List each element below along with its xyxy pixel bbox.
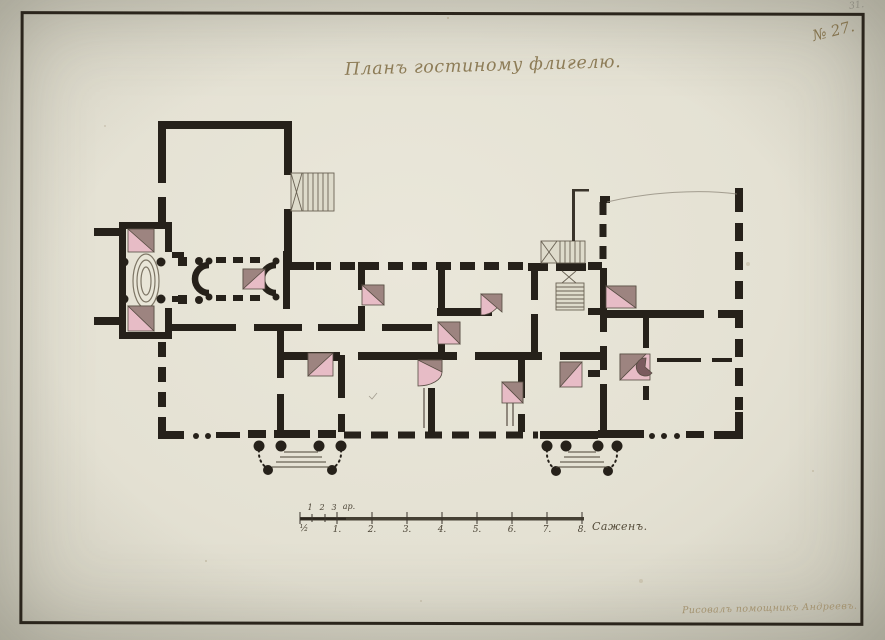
scale-arshin-label: 2 <box>319 503 324 512</box>
floor-plan-drawing <box>0 0 885 640</box>
scale-arshin-unit: ар. <box>343 502 355 511</box>
porch-west <box>254 441 347 476</box>
oval-staircase <box>133 254 159 308</box>
scale-unit-label: Саженъ. <box>592 520 648 533</box>
scale-sazhen-label: 5. <box>473 525 482 535</box>
rear-staircase-upper <box>541 189 589 263</box>
stove <box>438 322 460 344</box>
scale-bar <box>300 512 584 524</box>
scale-sazhen-label: 1. <box>333 525 342 535</box>
porch-east <box>542 441 623 477</box>
stove <box>560 362 582 387</box>
scale-sazhen-label: 7. <box>543 525 552 535</box>
stove <box>128 229 154 252</box>
stove <box>243 269 265 289</box>
walls-solid <box>94 121 743 439</box>
scale-sazhen-label: 4. <box>438 525 447 535</box>
stove <box>606 286 636 308</box>
pencil-inventory-number: 31. <box>848 0 864 12</box>
stove <box>620 354 652 380</box>
niche-west <box>195 265 209 293</box>
stove <box>308 353 333 376</box>
scale-sazhen-label: 2. <box>368 525 377 535</box>
scale-arshin-label: 3 <box>331 503 336 512</box>
scale-sazhen-label: ½ <box>300 524 309 534</box>
stove <box>128 306 154 331</box>
hall-staircase <box>291 173 334 211</box>
scale-sazhen-label: 6. <box>508 525 517 535</box>
scale-sazhen-label: 3. <box>403 525 412 535</box>
scale-arshin-label: 1 <box>307 503 312 512</box>
scanned-drawing-photo: 31. № 27. Планъ гостиному флигелю. Рисов… <box>0 0 885 640</box>
scale-sazhen-label: 8. <box>578 525 587 535</box>
stove <box>362 285 384 305</box>
rear-staircase-lower <box>556 271 584 310</box>
stove <box>481 294 502 315</box>
